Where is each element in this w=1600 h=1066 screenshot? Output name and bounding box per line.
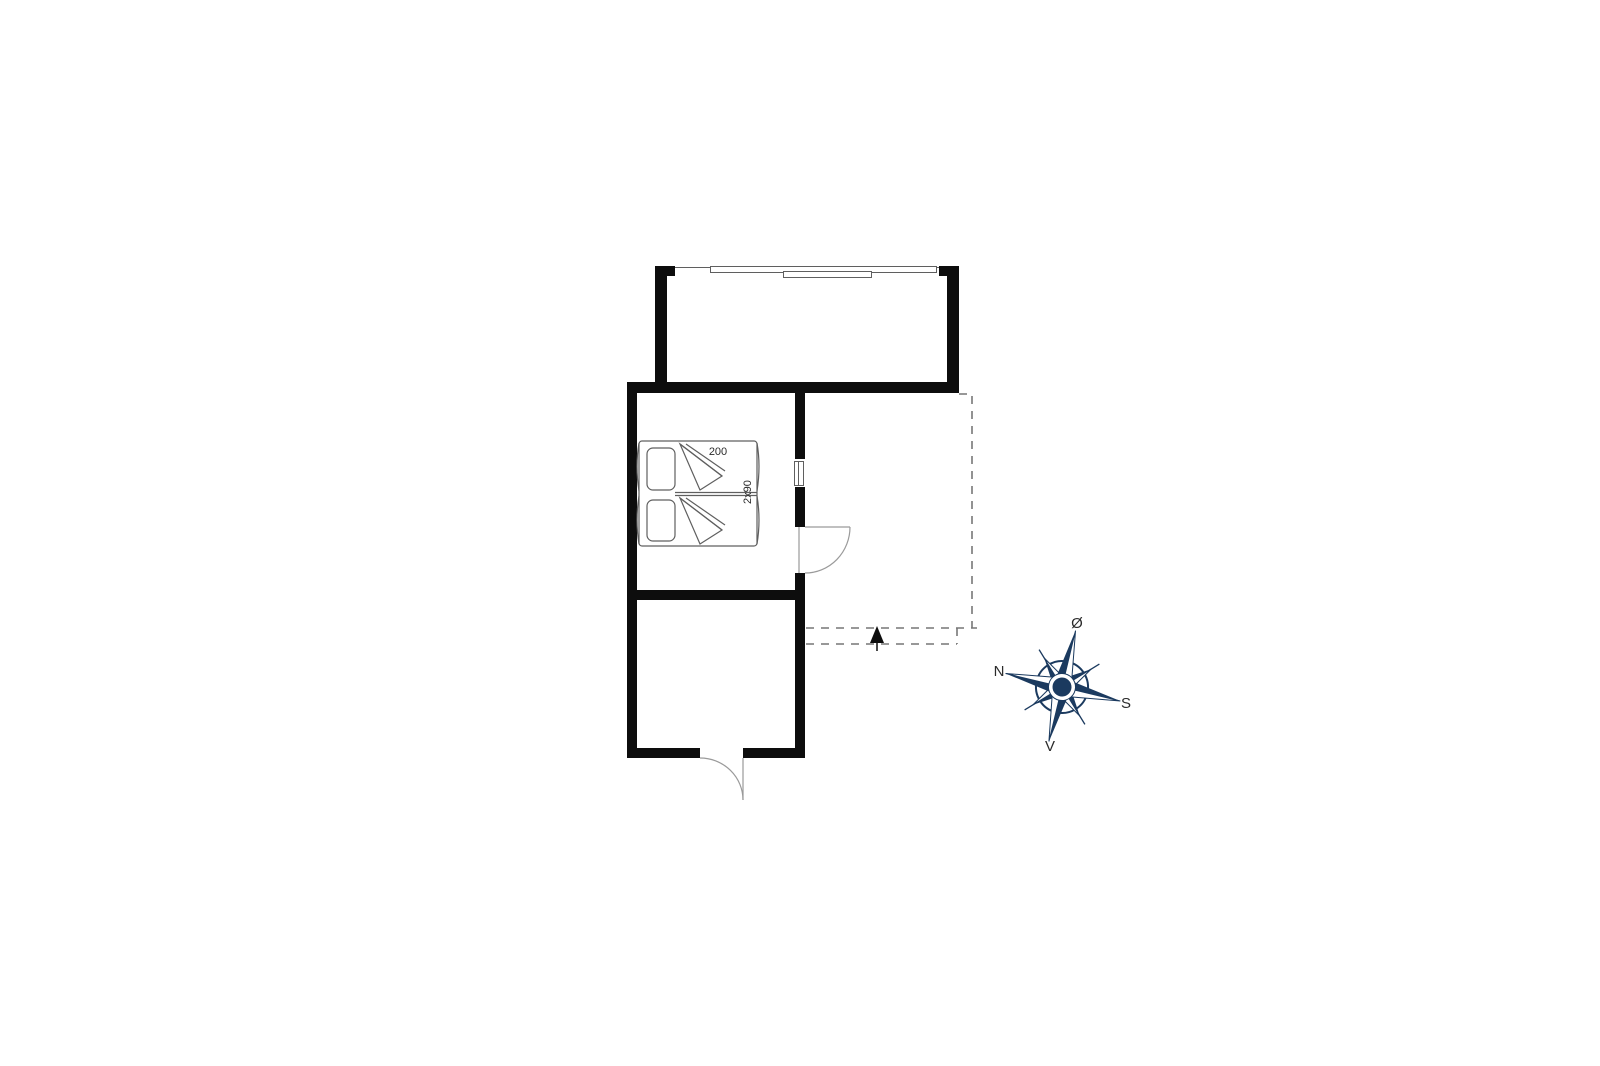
compass-north-label: N [994, 663, 1005, 680]
compass-west-label: V [1045, 738, 1055, 755]
compass-star [993, 617, 1134, 755]
plan-linework [0, 0, 1600, 1066]
door-swing-bedroom-icon [799, 527, 850, 573]
compass-east-label: Ø [1071, 615, 1083, 632]
dashed-terrace-outline [806, 394, 977, 644]
floor-plan-canvas: 200 2x90 [0, 0, 1600, 1066]
entrance-arrow-icon [870, 626, 884, 651]
compass-rose-icon: Ø N S V [960, 595, 1150, 770]
door-swing-entrance-icon [700, 758, 743, 800]
compass-south-label: S [1121, 695, 1131, 712]
